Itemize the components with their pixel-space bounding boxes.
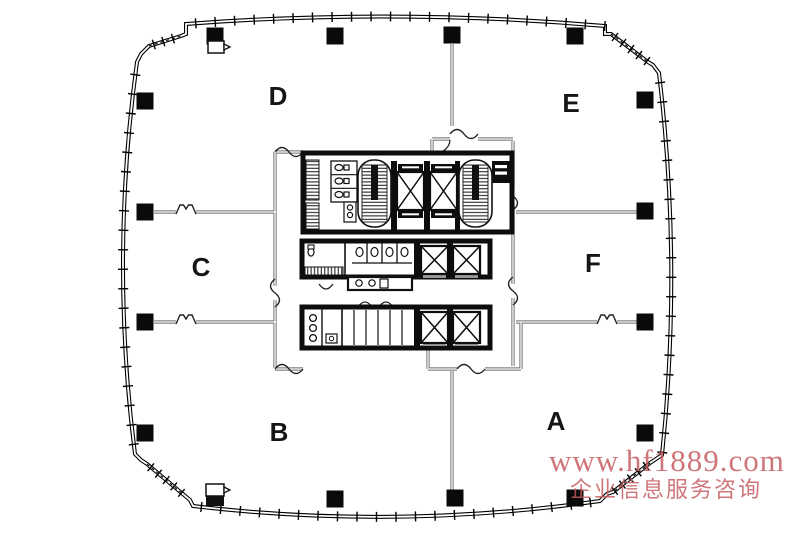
watermark: www.hf1889.com 企业信息服务咨询 — [549, 443, 785, 502]
watermark-caption-text: 企业信息服务咨询 — [570, 477, 762, 502]
elevator-icon — [421, 312, 448, 343]
urinal-icon — [356, 248, 363, 257]
watermark-url-text: www.hf1889.com — [549, 443, 785, 478]
column — [444, 27, 461, 44]
urinal-icon — [386, 248, 393, 257]
elevator-sill-slot — [435, 166, 452, 168]
elevator-icon — [453, 312, 480, 343]
column — [447, 490, 464, 507]
sink-icon — [356, 280, 362, 286]
shaft-vent-slot — [495, 172, 507, 175]
elevator-icon — [453, 246, 480, 274]
shelf-hatch — [306, 160, 319, 200]
toilet-icon — [335, 192, 349, 198]
column — [137, 314, 154, 331]
floor-plan-drawing: DECFBA www.hf1889.com 企业信息服务咨询 — [0, 0, 799, 533]
column — [637, 92, 654, 109]
column — [327, 28, 344, 45]
elevator-icon — [421, 246, 448, 274]
zone-label-d: D — [269, 81, 288, 111]
hose-cabinet-icon — [206, 484, 230, 506]
sink-icon — [369, 280, 375, 286]
zone-label-b: B — [270, 417, 289, 447]
door-swing-icon — [319, 284, 333, 289]
bench-hatch — [305, 267, 343, 275]
sink-icon — [347, 205, 352, 210]
floor-plan-page: DECFBA www.hf1889.com 企业信息服务咨询 — [0, 0, 799, 533]
door-break-icon — [176, 315, 196, 324]
column — [137, 425, 154, 442]
elevator-icon — [397, 172, 424, 210]
stove-burner-icon — [310, 335, 317, 342]
urinal-icon — [401, 248, 408, 257]
stove-burner-icon — [310, 325, 317, 332]
elevator-sill-slot — [435, 213, 452, 215]
column — [327, 491, 344, 508]
shaft-vent-slot — [495, 165, 507, 168]
stair-icon — [459, 160, 492, 227]
zone-label-f: F — [585, 248, 601, 278]
zone-label-c: C — [192, 252, 211, 282]
elevator-icon — [430, 172, 457, 210]
shaft-wall — [414, 243, 420, 276]
zone-label-e: E — [562, 88, 579, 118]
hose-cabinet-icon — [208, 41, 230, 53]
stair-icon — [358, 160, 391, 227]
mullion-tick-row — [201, 497, 591, 522]
toilet-icon — [308, 245, 314, 256]
column — [567, 28, 584, 45]
door-break-icon — [457, 365, 485, 374]
urinal-icon — [371, 248, 378, 257]
service-core — [302, 153, 512, 348]
door-break-icon — [450, 130, 478, 139]
shaft-wall — [414, 309, 420, 347]
door-break-icon — [597, 315, 617, 324]
toilet-icon — [335, 165, 349, 171]
sink-drain — [329, 336, 333, 340]
counter-fixture — [380, 279, 388, 288]
column — [137, 204, 154, 221]
elevator-sill-slot — [402, 166, 419, 168]
column — [637, 314, 654, 331]
toilet-icon — [335, 178, 349, 184]
shelf-hatch — [306, 203, 319, 229]
column — [637, 425, 654, 442]
sink-icon — [347, 212, 352, 217]
column — [137, 93, 154, 110]
zone-label-a: A — [547, 406, 566, 436]
mullion-tick-row — [152, 34, 174, 50]
door-break-icon — [176, 205, 196, 214]
stove-burner-icon — [310, 315, 317, 322]
elevator-sill-slot — [402, 213, 419, 215]
column — [637, 203, 654, 220]
